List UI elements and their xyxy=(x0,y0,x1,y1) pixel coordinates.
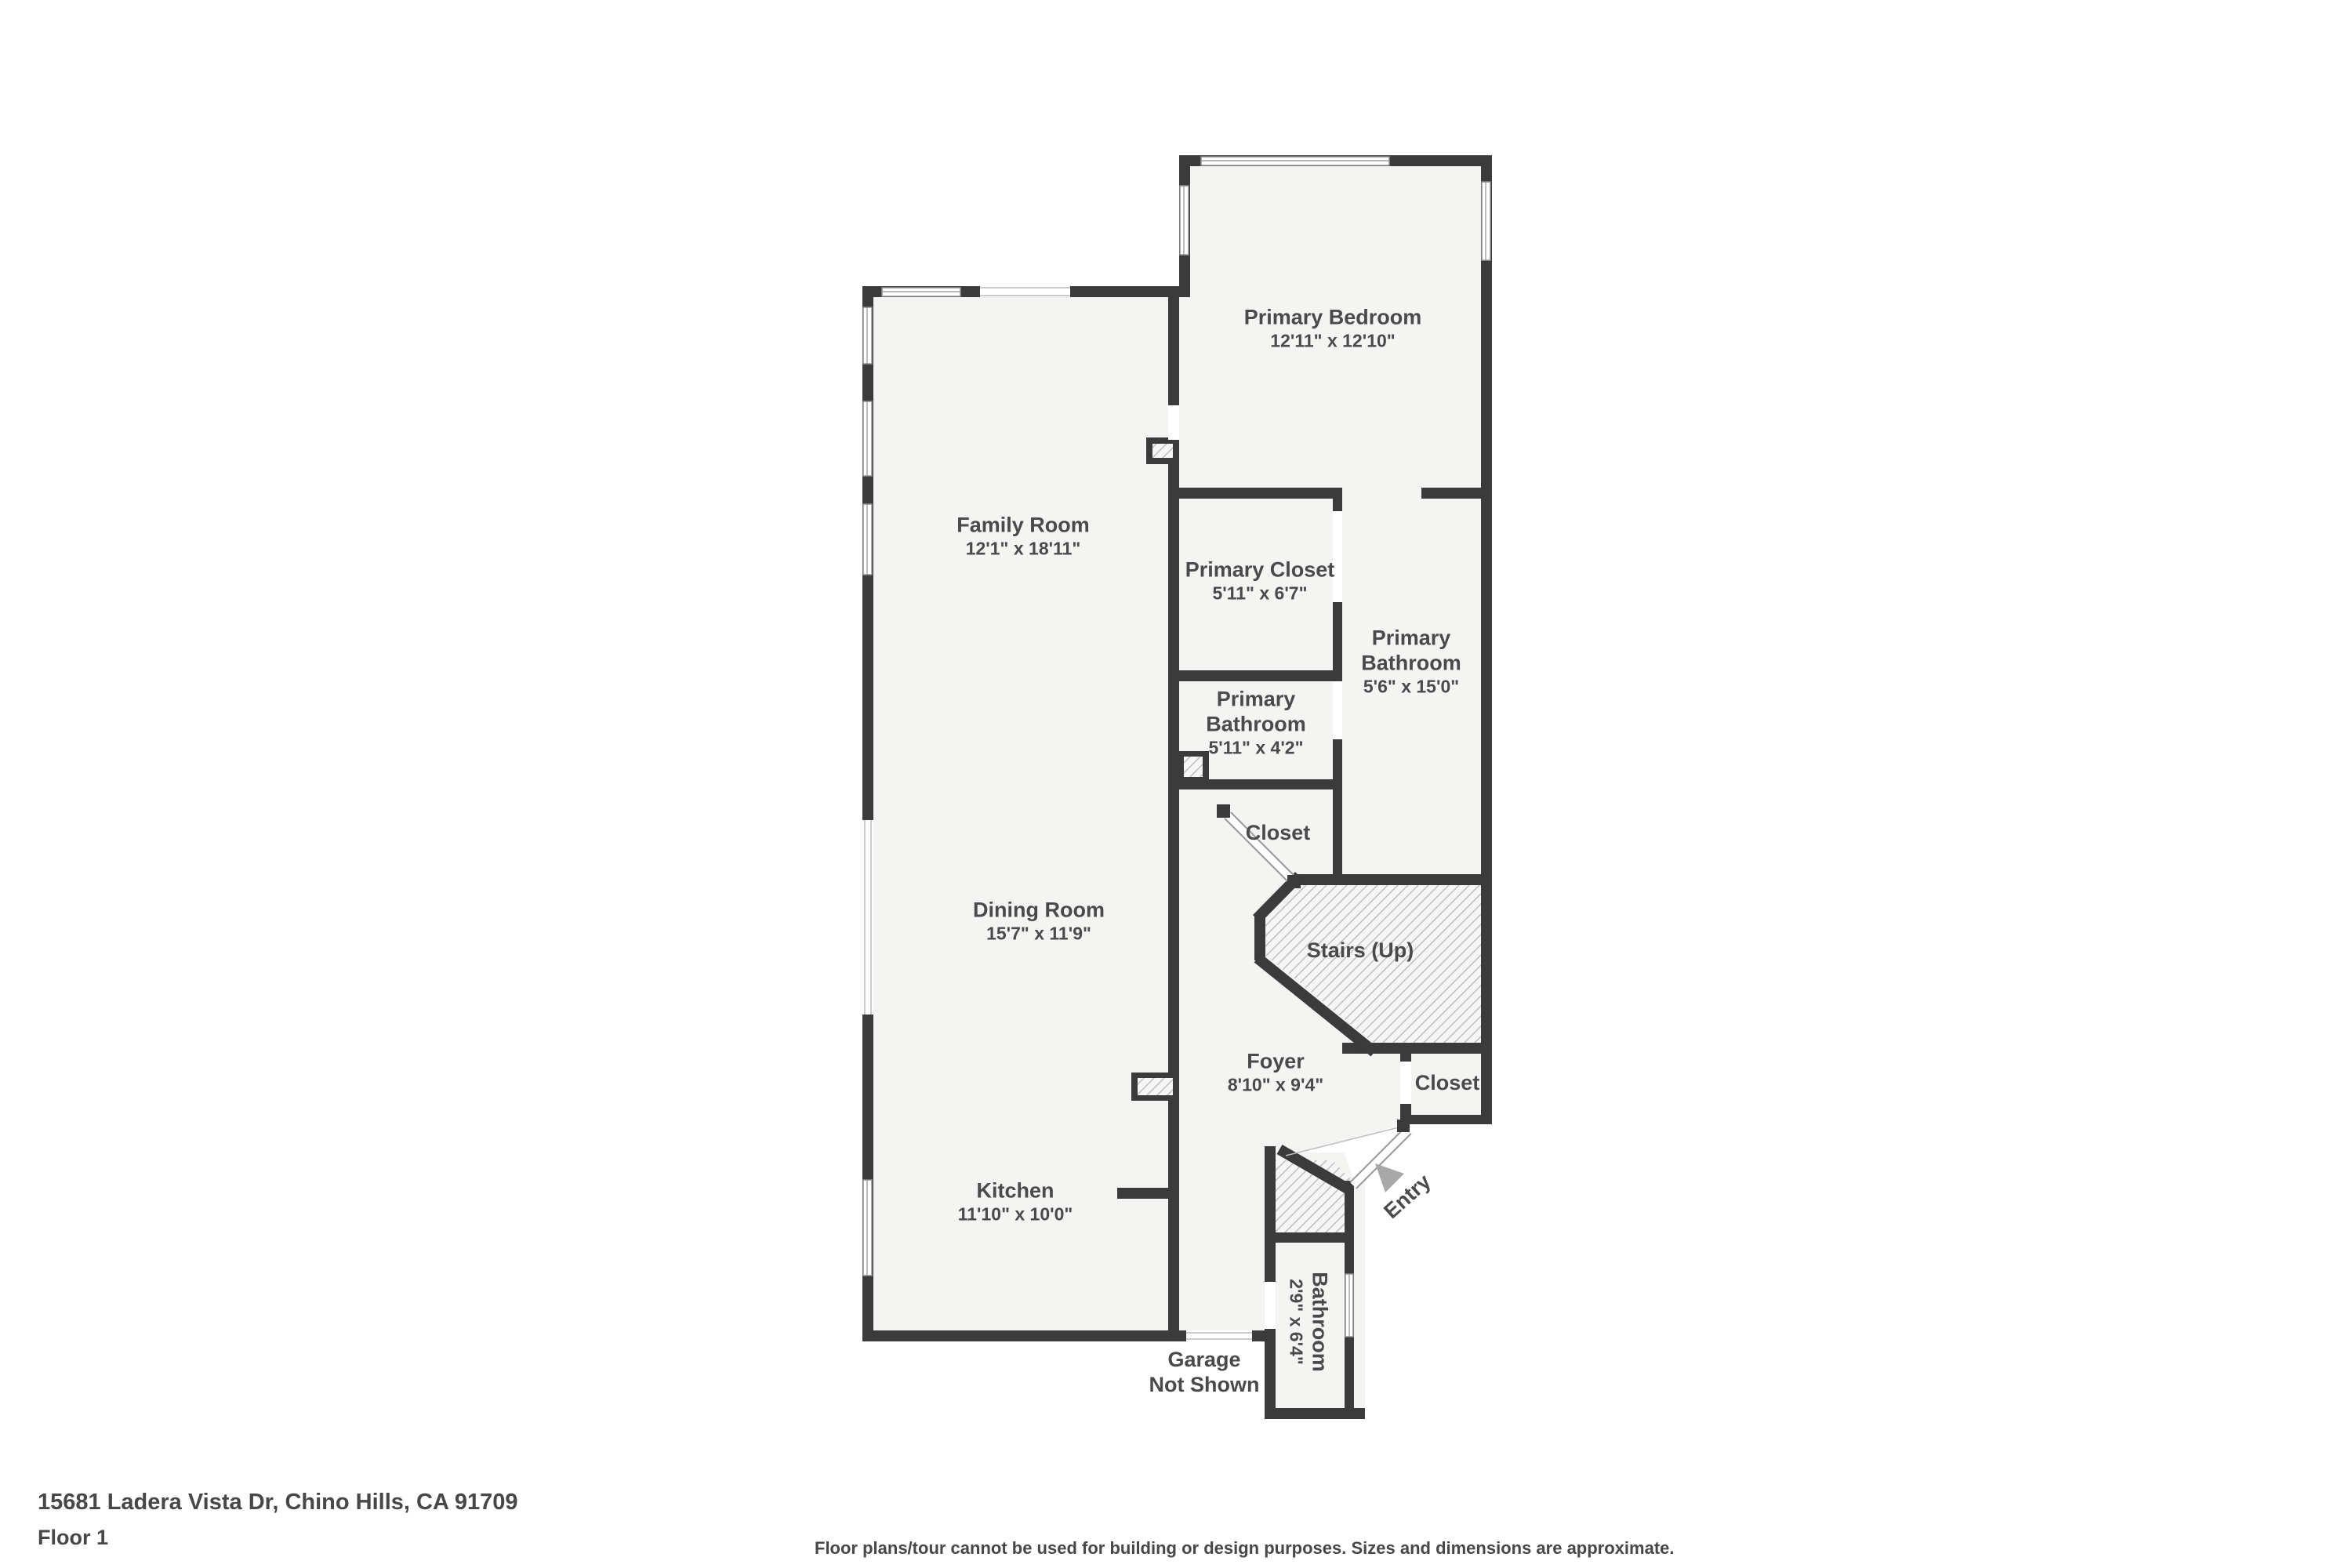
room-name: Family Room xyxy=(956,513,1090,538)
floorplan: Primary Bedroom 12'11" x 12'10" Family R… xyxy=(0,0,2352,1568)
room-name-line2: Bathroom xyxy=(1206,712,1306,737)
room-name: Closet xyxy=(1246,820,1311,845)
room-label-entry-closet: Closet xyxy=(1415,1070,1480,1095)
room-name: Closet xyxy=(1415,1070,1480,1095)
room-dims: 8'10" x 9'4" xyxy=(1228,1074,1323,1097)
room-name-line1: Primary xyxy=(1361,626,1461,651)
room-dims: 5'11" x 4'2" xyxy=(1206,737,1306,760)
room-dims: 12'1" x 18'11" xyxy=(956,538,1090,561)
room-dims: 5'6" x 15'0" xyxy=(1361,676,1461,699)
room-dims: 5'11" x 6'7" xyxy=(1185,583,1335,605)
room-label-foyer: Foyer 8'10" x 9'4" xyxy=(1228,1049,1323,1097)
floor-label: Floor 1 xyxy=(38,1526,108,1550)
room-name: Foyer xyxy=(1228,1049,1323,1074)
room-name: Bathroom xyxy=(1308,1272,1333,1372)
room-name-line2: Bathroom xyxy=(1361,651,1461,676)
room-name: Primary Bedroom xyxy=(1244,305,1422,330)
room-dims: 15'7" x 11'9" xyxy=(973,923,1105,946)
room-name: Kitchen xyxy=(958,1178,1073,1203)
room-label-primary-bedroom: Primary Bedroom 12'11" x 12'10" xyxy=(1244,305,1422,353)
room-label-primary-bathroom-large: Primary Bathroom 5'6" x 15'0" xyxy=(1361,626,1461,699)
garage-line1: Garage xyxy=(1149,1347,1260,1372)
property-address: 15681 Ladera Vista Dr, Chino Hills, CA 9… xyxy=(38,1490,518,1515)
room-name: Primary Closet xyxy=(1185,557,1335,583)
room-label-bathroom: Bathroom 2'9" x 6'4" xyxy=(1285,1272,1333,1372)
room-label-stairs: Stairs (Up) xyxy=(1307,938,1414,963)
label-garage-not-shown: Garage Not Shown xyxy=(1149,1347,1260,1397)
floorplan-drawing xyxy=(0,0,2352,1568)
room-label-kitchen: Kitchen 11'10" x 10'0" xyxy=(958,1178,1073,1226)
room-label-hall-closet: Closet xyxy=(1246,820,1311,845)
room-dims: 11'10" x 10'0" xyxy=(958,1203,1073,1226)
room-name-line1: Primary xyxy=(1206,687,1306,712)
room-label-primary-closet: Primary Closet 5'11" x 6'7" xyxy=(1185,557,1335,605)
room-label-family-room: Family Room 12'1" x 18'11" xyxy=(956,513,1090,561)
room-name: Dining Room xyxy=(973,898,1105,923)
room-label-primary-bathroom-small: Primary Bathroom 5'11" x 4'2" xyxy=(1206,687,1306,760)
room-label-dining-room: Dining Room 15'7" x 11'9" xyxy=(973,898,1105,946)
disclaimer-text: Floor plans/tour cannot be used for buil… xyxy=(815,1538,1675,1559)
room-dims: 12'11" x 12'10" xyxy=(1244,330,1422,353)
room-dims: 2'9" x 6'4" xyxy=(1285,1272,1308,1372)
room-name: Stairs (Up) xyxy=(1307,938,1414,963)
garage-line2: Not Shown xyxy=(1149,1372,1260,1397)
